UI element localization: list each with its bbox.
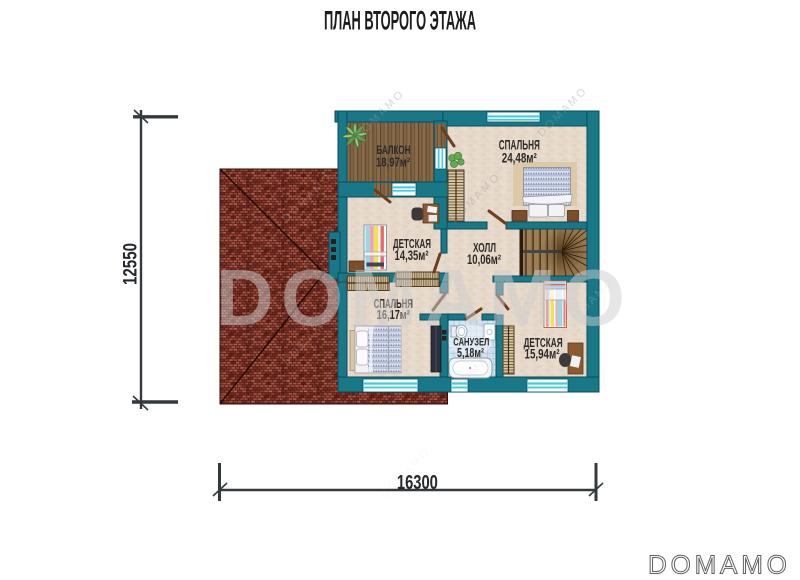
svg-text:18,97м²: 18,97м² xyxy=(376,155,410,170)
svg-text:12550: 12550 xyxy=(119,243,141,285)
svg-text:DOMAMO: DOMAMO xyxy=(216,253,633,342)
svg-text:15,94м²: 15,94м² xyxy=(525,346,560,362)
svg-text:DOMAMO: DOMAMO xyxy=(648,550,791,580)
svg-text:24,48м²: 24,48м² xyxy=(502,150,537,166)
svg-text:ПЛАН ВТОРОГО ЭТАЖА: ПЛАН ВТОРОГО ЭТАЖА xyxy=(324,6,476,36)
